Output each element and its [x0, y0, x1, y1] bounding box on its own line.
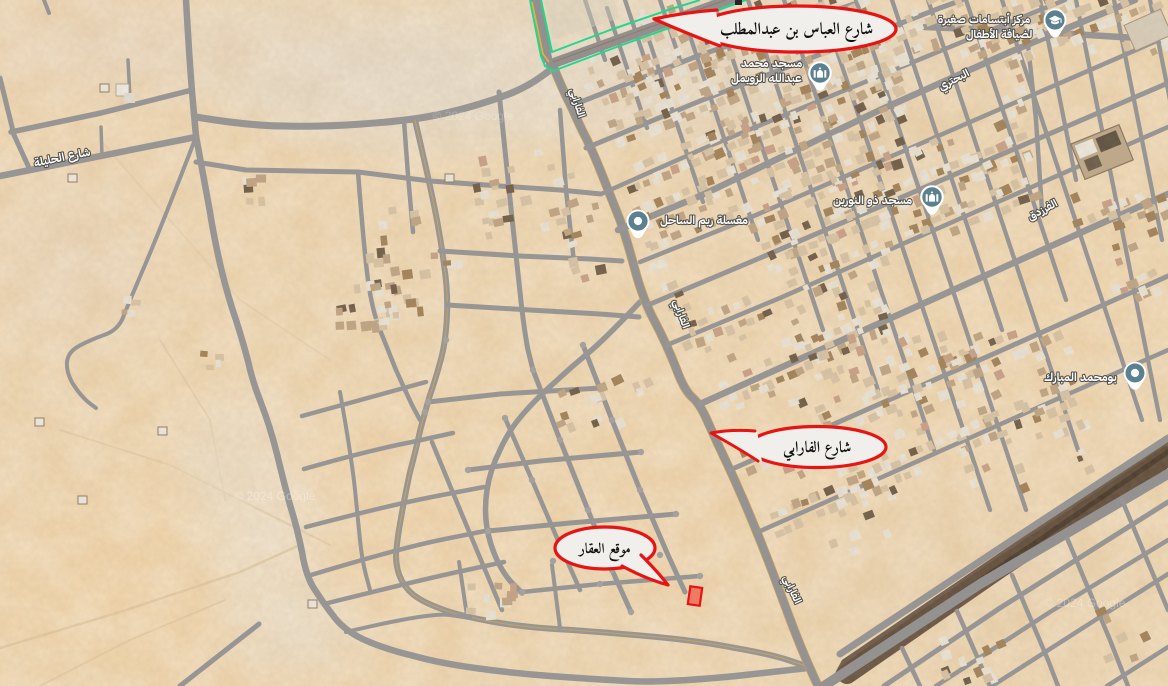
- svg-text:© 2024 Google: © 2024 Google: [1045, 596, 1126, 610]
- svg-text:© 2024 Google: © 2024 Google: [235, 489, 316, 503]
- svg-text:© 2024 Google: © 2024 Google: [433, 109, 514, 123]
